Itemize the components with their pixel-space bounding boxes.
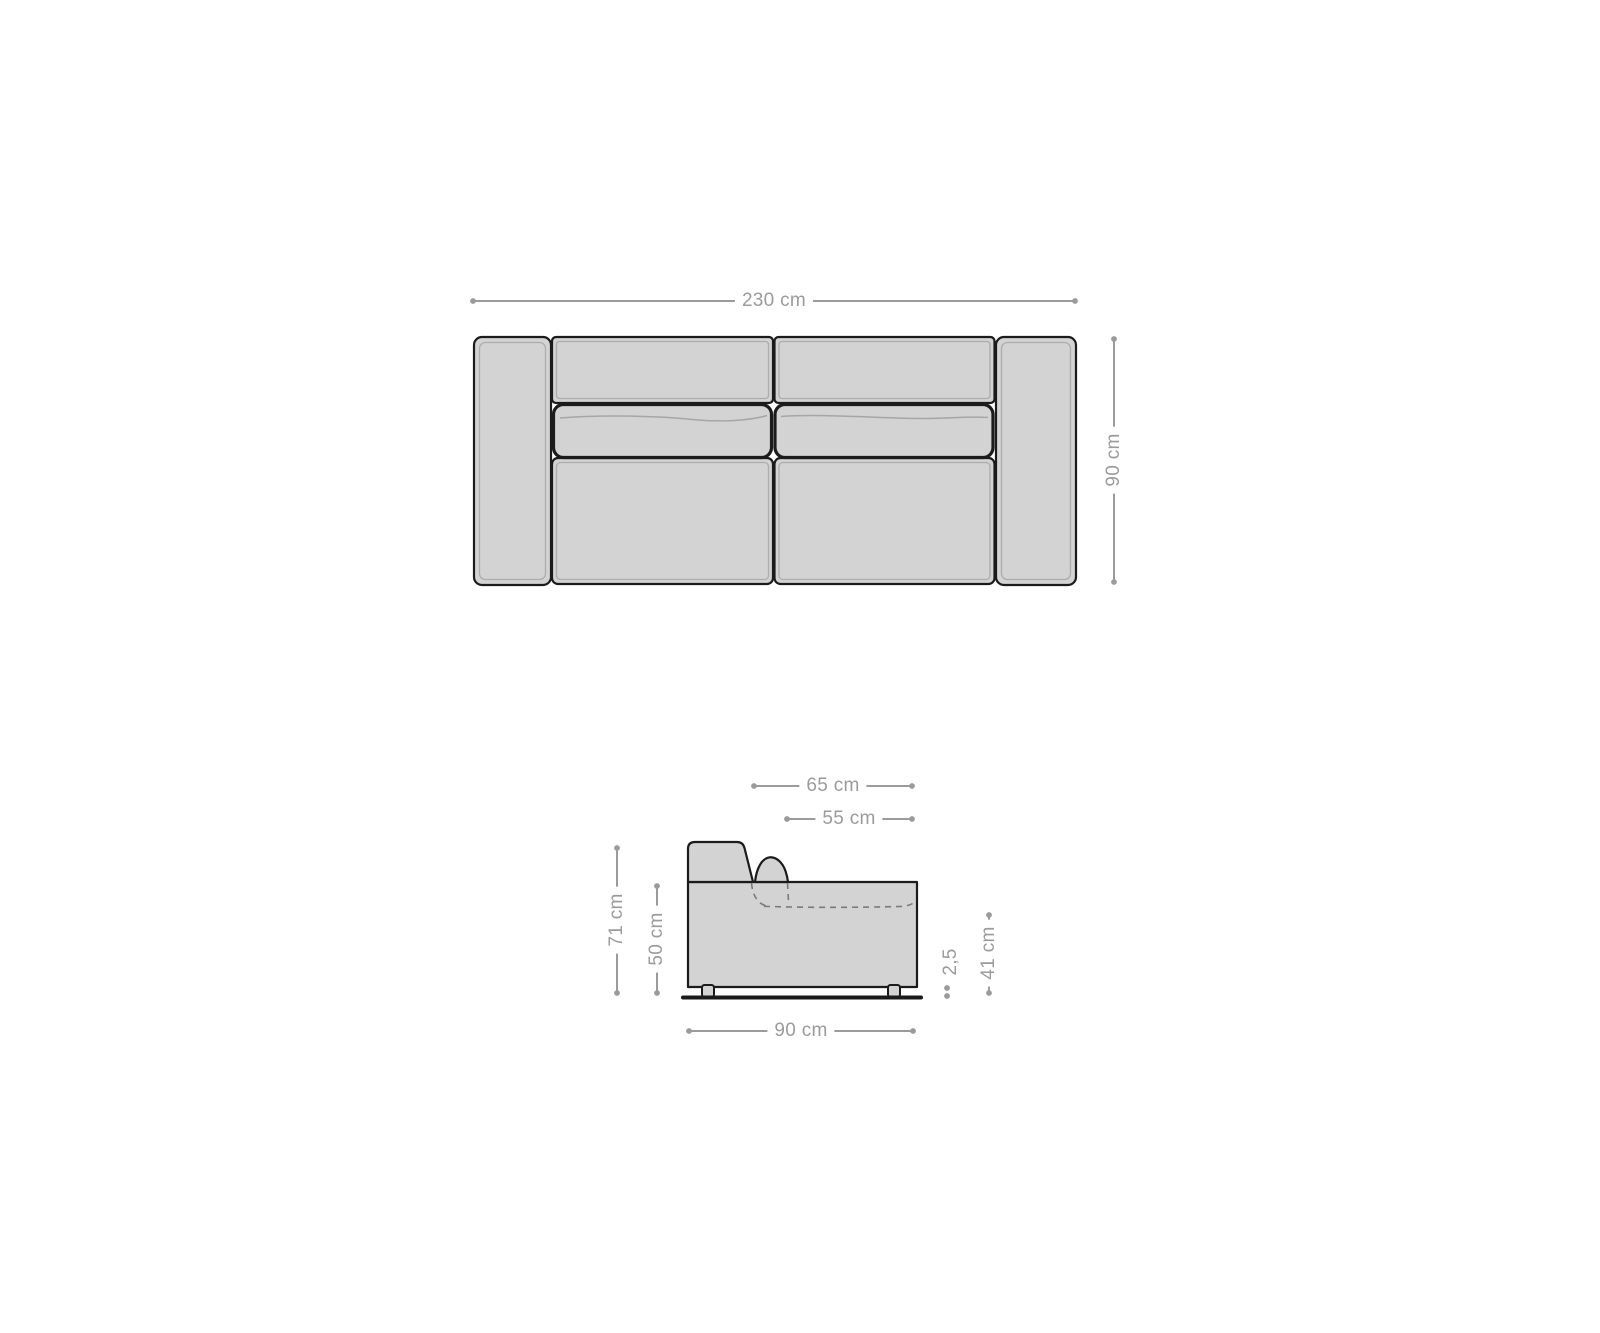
seat-depth-dot-left [784, 816, 790, 822]
armrest-height-dot-bottom [654, 990, 660, 996]
side-backrest [688, 842, 753, 882]
seat-height-dot-top [986, 912, 992, 918]
diagram-canvas [0, 0, 1600, 1333]
leg-height-dot-bottom [944, 993, 950, 999]
dim-label-seat-depth: 55 cm [815, 808, 882, 830]
top-seat-base-right [775, 458, 995, 584]
total-height-dot-bottom [614, 990, 620, 996]
dim-label-total-depth: 90 cm [767, 1020, 834, 1042]
dim-label-armrest-height: 50 cm [646, 905, 668, 972]
overall-depth-dim-dot-top [1111, 336, 1117, 342]
dim-label-total-height: 71 cm [606, 886, 628, 953]
dim-label-overall-depth: 90 cm [1103, 426, 1125, 493]
leg-height-dot-top [944, 985, 950, 991]
overall-depth-dim-dot-bottom [1111, 579, 1117, 585]
top-seat-cushion-left [554, 405, 772, 458]
side-back-pillow [755, 857, 788, 882]
top-seat-base-left [552, 458, 773, 584]
total-depth-dot-left [686, 1028, 692, 1034]
seat-height-dot-bottom [986, 990, 992, 996]
total-depth-dot-right [910, 1028, 916, 1034]
total-height-dot-top [614, 845, 620, 851]
top-backrest-cushion-left [552, 337, 773, 403]
seat-depth-dot-right [909, 816, 915, 822]
side-body [688, 882, 917, 987]
sofa-side-view [683, 842, 921, 998]
sofa-dimension-diagram: 230 cm 90 cm 65 cm 55 cm 71 cm 50 cm 2,5… [0, 0, 1600, 1333]
top-armrest-right [996, 337, 1076, 585]
dim-label-overall-width: 230 cm [735, 290, 813, 312]
dim-label-leg-height: 2,5 [940, 941, 962, 982]
overall-width-dim-dot-left [470, 298, 476, 304]
side-leg-back [702, 985, 714, 997]
depth-with-back-cushion-dot-left [751, 783, 757, 789]
dim-label-depth-with-back-cushion: 65 cm [799, 775, 866, 797]
dim-label-seat-height: 41 cm [978, 919, 1000, 986]
overall-width-dim-dot-right [1072, 298, 1078, 304]
top-armrest-left [474, 337, 551, 585]
armrest-height-dot-top [654, 883, 660, 889]
top-seat-cushion-right [775, 405, 993, 458]
top-backrest-cushion-right [775, 337, 995, 403]
sofa-top-view [474, 337, 1076, 585]
side-leg-front [888, 985, 900, 997]
depth-with-back-cushion-dot-right [909, 783, 915, 789]
